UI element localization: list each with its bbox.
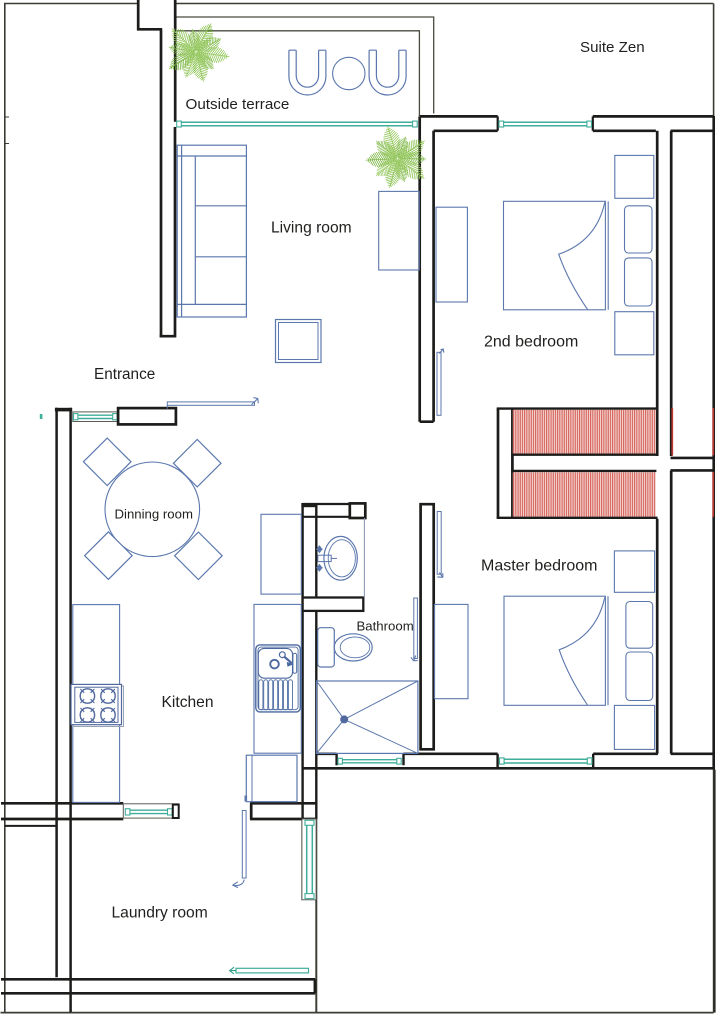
svg-text:Entrance: Entrance (94, 366, 155, 383)
svg-text:Outside terrace: Outside terrace (186, 96, 290, 113)
svg-text:2nd bedroom: 2nd bedroom (484, 334, 578, 351)
svg-text:Bathroom: Bathroom (357, 619, 414, 634)
svg-text:Living room: Living room (271, 220, 352, 237)
svg-text:Suite Zen: Suite Zen (580, 39, 645, 56)
svg-text:Kitchen: Kitchen (162, 694, 214, 711)
svg-text:Master bedroom: Master bedroom (481, 557, 598, 574)
svg-text:Dinning room: Dinning room (115, 507, 193, 522)
svg-text:Laundry room: Laundry room (112, 905, 208, 922)
